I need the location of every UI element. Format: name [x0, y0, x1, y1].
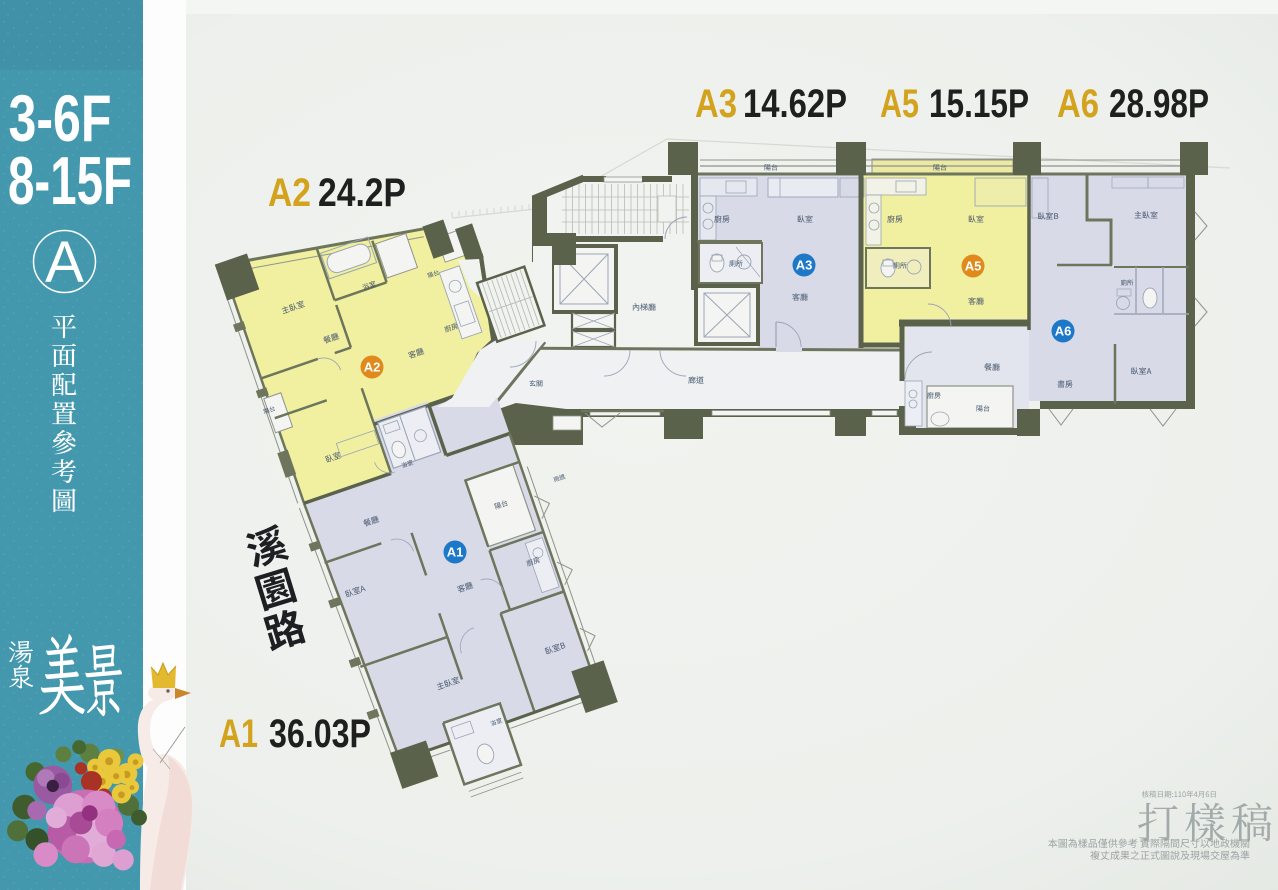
svg-text:A1: A1: [219, 712, 258, 756]
svg-text:A2: A2: [268, 171, 311, 215]
svg-text:A3: A3: [796, 258, 813, 273]
svg-text:A: A: [45, 230, 84, 295]
svg-text:A3: A3: [695, 82, 737, 126]
svg-text:A2: A2: [364, 360, 381, 375]
svg-text:14.62P: 14.62P: [743, 82, 847, 126]
svg-text:24.2P: 24.2P: [318, 171, 406, 215]
svg-text:15.15P: 15.15P: [929, 82, 1029, 126]
svg-text:36.03P: 36.03P: [269, 712, 371, 756]
svg-text:A5: A5: [880, 82, 919, 126]
svg-text:8-15F: 8-15F: [8, 143, 132, 219]
svg-text:A6: A6: [1057, 82, 1099, 126]
svg-text:A1: A1: [447, 545, 464, 560]
svg-text:28.98P: 28.98P: [1109, 82, 1209, 126]
svg-text:A5: A5: [965, 259, 982, 274]
svg-text:A6: A6: [1055, 324, 1072, 339]
